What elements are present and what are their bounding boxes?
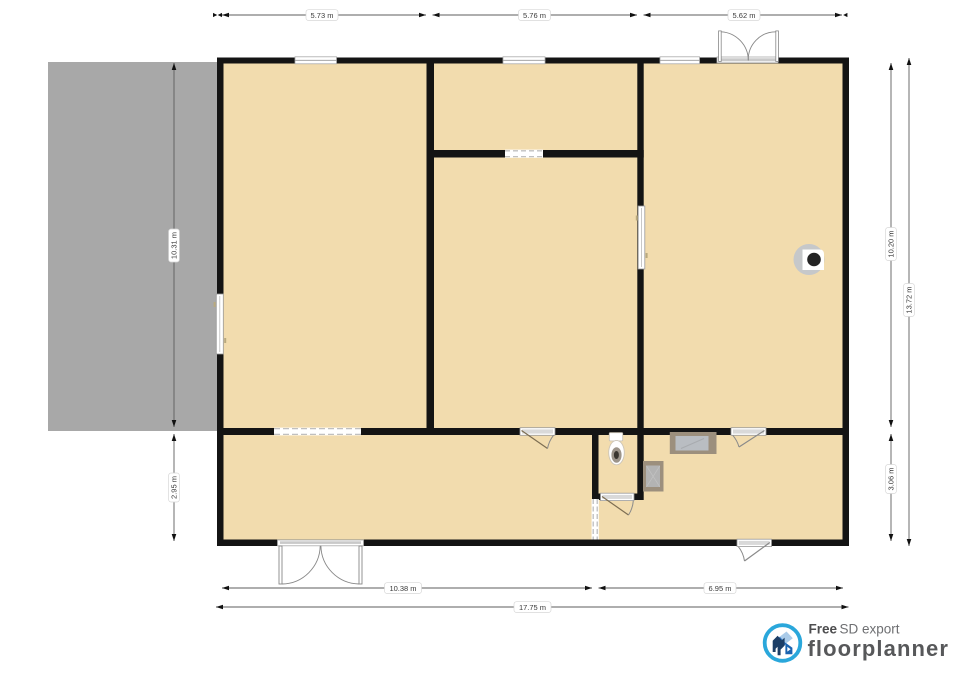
svg-text:6.95 m: 6.95 m	[709, 584, 732, 593]
svg-text:Free: Free	[809, 622, 838, 637]
svg-text:5.73 m: 5.73 m	[311, 11, 334, 20]
svg-text:10.20 m: 10.20 m	[887, 230, 896, 257]
svg-text:5.76 m: 5.76 m	[523, 11, 546, 20]
svg-text:10.31 m: 10.31 m	[170, 232, 179, 259]
svg-text:10.38 m: 10.38 m	[389, 584, 416, 593]
svg-text:2.95 m: 2.95 m	[170, 476, 179, 499]
svg-text:SD export: SD export	[840, 622, 900, 637]
svg-text:3.06 m: 3.06 m	[887, 468, 896, 491]
svg-text:floorplanner: floorplanner	[808, 636, 950, 661]
svg-text:5.62 m: 5.62 m	[733, 11, 756, 20]
svg-text:13.72 m: 13.72 m	[905, 286, 914, 313]
svg-text:17.75 m: 17.75 m	[519, 603, 546, 612]
